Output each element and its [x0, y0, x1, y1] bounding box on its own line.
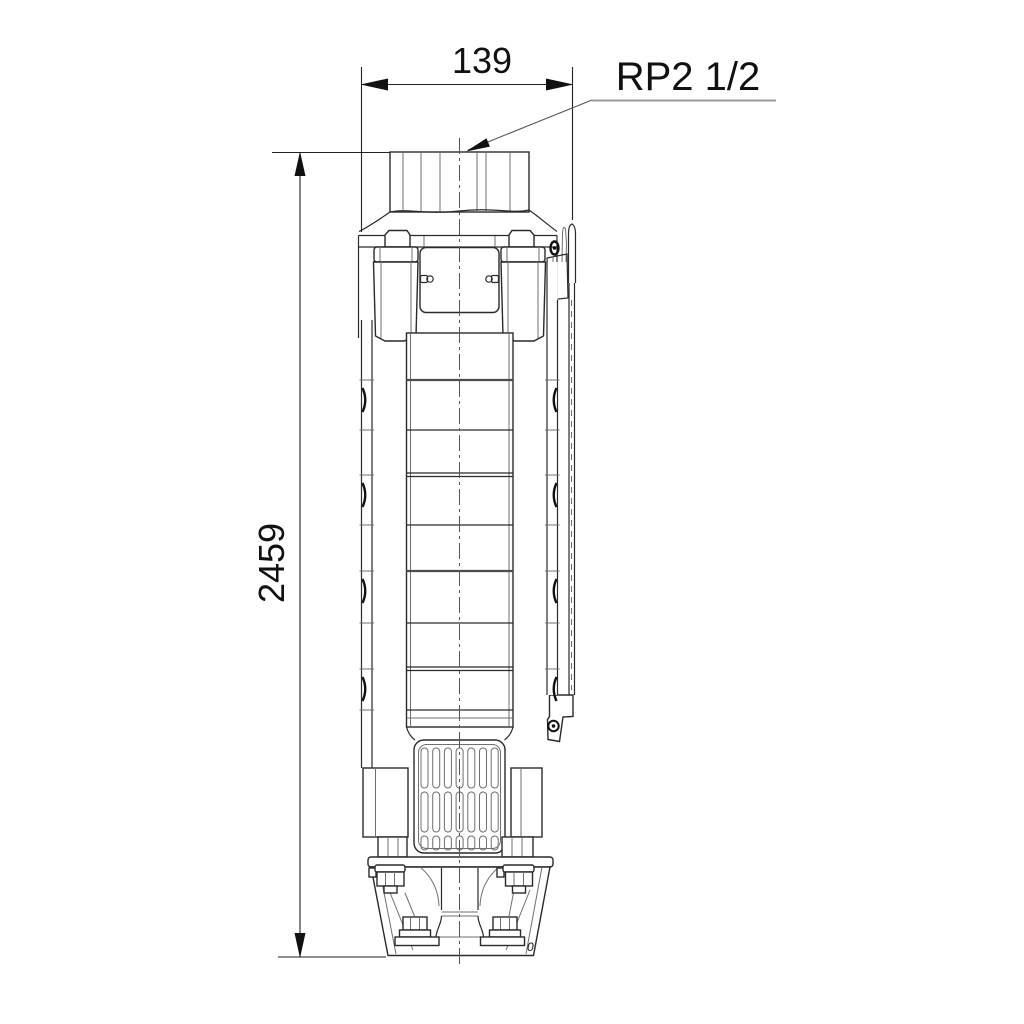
width-dimension-label: 139 [452, 40, 512, 81]
motor-base: 0 [368, 857, 553, 956]
cable-clamp-left [374, 231, 419, 342]
pump-outline: 0 [359, 138, 576, 966]
pump-dimensional-drawing: 0 139 2459 RP2 1/2 [0, 0, 1024, 1024]
height-dim-arrow-top [295, 152, 306, 177]
support-column-left [363, 768, 408, 857]
base-zero-mark: 0 [527, 940, 534, 954]
width-dim-arrow-left [361, 79, 389, 91]
cable-strap-left [360, 320, 375, 768]
cable-guard-grommet-top [551, 242, 559, 255]
height-dimension-label: 2459 [251, 523, 292, 603]
connection-leader-arrow [466, 138, 490, 151]
cable-clamp-right [501, 231, 546, 342]
discharge-connection [359, 152, 557, 232]
connection-label: RP2 1/2 [616, 55, 761, 99]
cable-strap-right [545, 262, 560, 701]
support-column-right [502, 768, 542, 857]
drawing-canvas: 0 139 2459 RP2 1/2 [0, 0, 1024, 1024]
connection-leader: RP2 1/2 [466, 55, 776, 152]
height-dim-arrow-bottom [295, 933, 306, 958]
width-dim-arrow-right [546, 79, 574, 91]
cable-guard-bracket-bottom [548, 695, 574, 742]
